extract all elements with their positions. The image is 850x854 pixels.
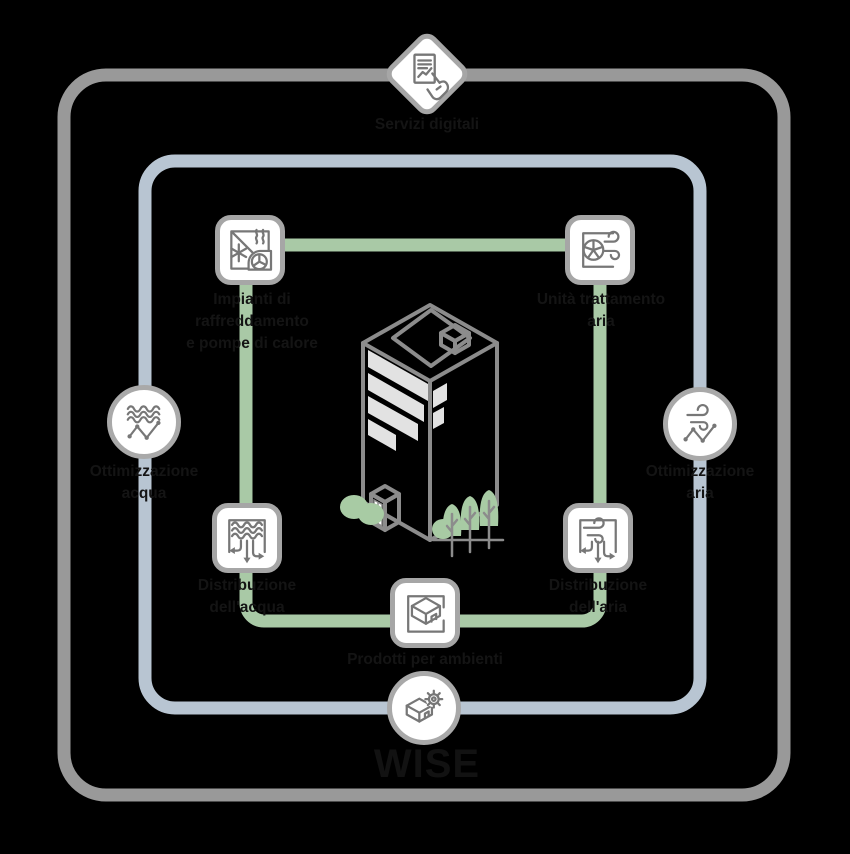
node-unita-trattamento[interactable] [565, 215, 635, 285]
node-wise[interactable] [387, 671, 461, 745]
label-ottimizzazione-aria: Ottimizzazione aria [646, 461, 755, 505]
label-line: acqua [90, 483, 199, 505]
label-line: Distribuzione [198, 575, 296, 597]
label-line: aria [537, 311, 665, 333]
node-prodotti-ambienti[interactable] [390, 578, 460, 648]
chiller-heat-pump-icon [222, 222, 278, 278]
node-ottimizzazione-aria[interactable] [663, 387, 737, 461]
entrance-roof [371, 486, 399, 502]
air-handling-unit-fan-icon [572, 222, 628, 278]
label-impianti: Impianti di raffreddamento e pompe di ca… [186, 289, 318, 355]
room-box-gear-icon [396, 680, 452, 736]
label-line: Ottimizzazione [90, 461, 199, 483]
water-optimization-icon [117, 395, 171, 449]
air-optimization-icon [673, 397, 727, 451]
label-servizi-digitali: Servizi digitali [375, 114, 479, 136]
label-wise: WISE [374, 744, 480, 784]
window-band [433, 407, 444, 429]
label-line: Distribuzione [549, 575, 647, 597]
diagram-canvas: Servizi digitali Impianti di raffreddame… [0, 0, 850, 854]
node-ottimizzazione-acqua[interactable] [107, 385, 181, 459]
water-distribution-icon [219, 510, 275, 566]
entrance-right [385, 494, 399, 530]
label-line: WISE [374, 744, 480, 784]
rooftop-unit-left [441, 333, 455, 353]
window-band [433, 383, 447, 408]
label-distribuzione-aria: Distribuzione dell'aria [549, 575, 647, 619]
label-line: Ottimizzazione [646, 461, 755, 483]
building-illustration [340, 305, 503, 556]
node-distribuzione-aria[interactable] [563, 503, 633, 573]
air-distribution-icon [570, 510, 626, 566]
label-line: raffreddamento [186, 311, 318, 333]
label-line: Impianti di [186, 289, 318, 311]
node-distribuzione-acqua[interactable] [212, 503, 282, 573]
label-line: dell'acqua [198, 597, 296, 619]
label-line: dell'aria [549, 597, 647, 619]
document-report-hand-icon [400, 47, 454, 101]
label-line: Prodotti per ambienti [347, 649, 503, 671]
label-line: Unità trattamento [537, 289, 665, 311]
label-line: aria [646, 483, 755, 505]
label-unita-trattamento: Unità trattamento aria [537, 289, 665, 333]
label-line: Servizi digitali [375, 114, 479, 136]
bush [358, 503, 384, 525]
label-distribuzione-acqua: Distribuzione dell'acqua [198, 575, 296, 619]
label-line: e pompe di calore [186, 333, 318, 355]
room-box-icon [397, 585, 453, 641]
node-impianti[interactable] [215, 215, 285, 285]
label-prodotti-ambienti: Prodotti per ambienti [347, 649, 503, 671]
label-ottimizzazione-acqua: Ottimizzazione acqua [90, 461, 199, 505]
